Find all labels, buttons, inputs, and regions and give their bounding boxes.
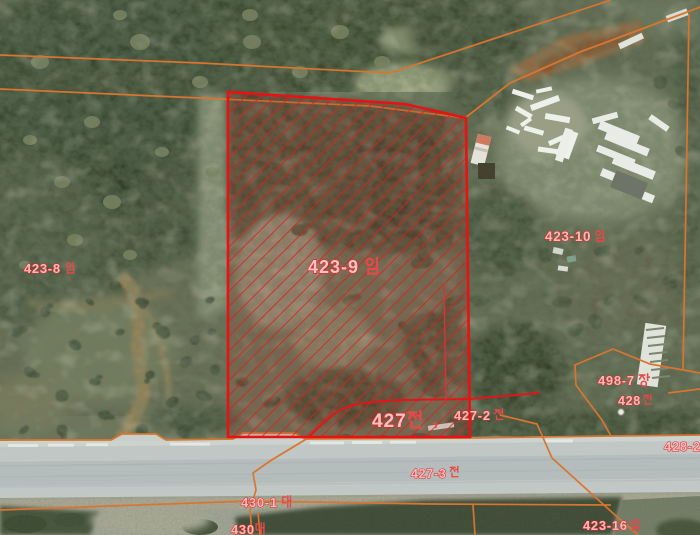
svg-text:423-16: 423-16 — [583, 518, 628, 533]
svg-text:498-7: 498-7 — [598, 373, 635, 388]
svg-text:423-10: 423-10 — [545, 229, 591, 244]
svg-text:427-2: 427-2 — [454, 408, 491, 423]
svg-text:427-3: 427-3 — [411, 467, 446, 481]
svg-text:428: 428 — [618, 394, 641, 408]
svg-text:423-9: 423-9 — [308, 257, 359, 277]
svg-text:430: 430 — [231, 522, 255, 535]
svg-text:430-1: 430-1 — [241, 495, 278, 510]
svg-text:423-8: 423-8 — [24, 261, 61, 276]
svg-text:428-2: 428-2 — [664, 439, 700, 454]
svg-text:427: 427 — [372, 411, 407, 432]
